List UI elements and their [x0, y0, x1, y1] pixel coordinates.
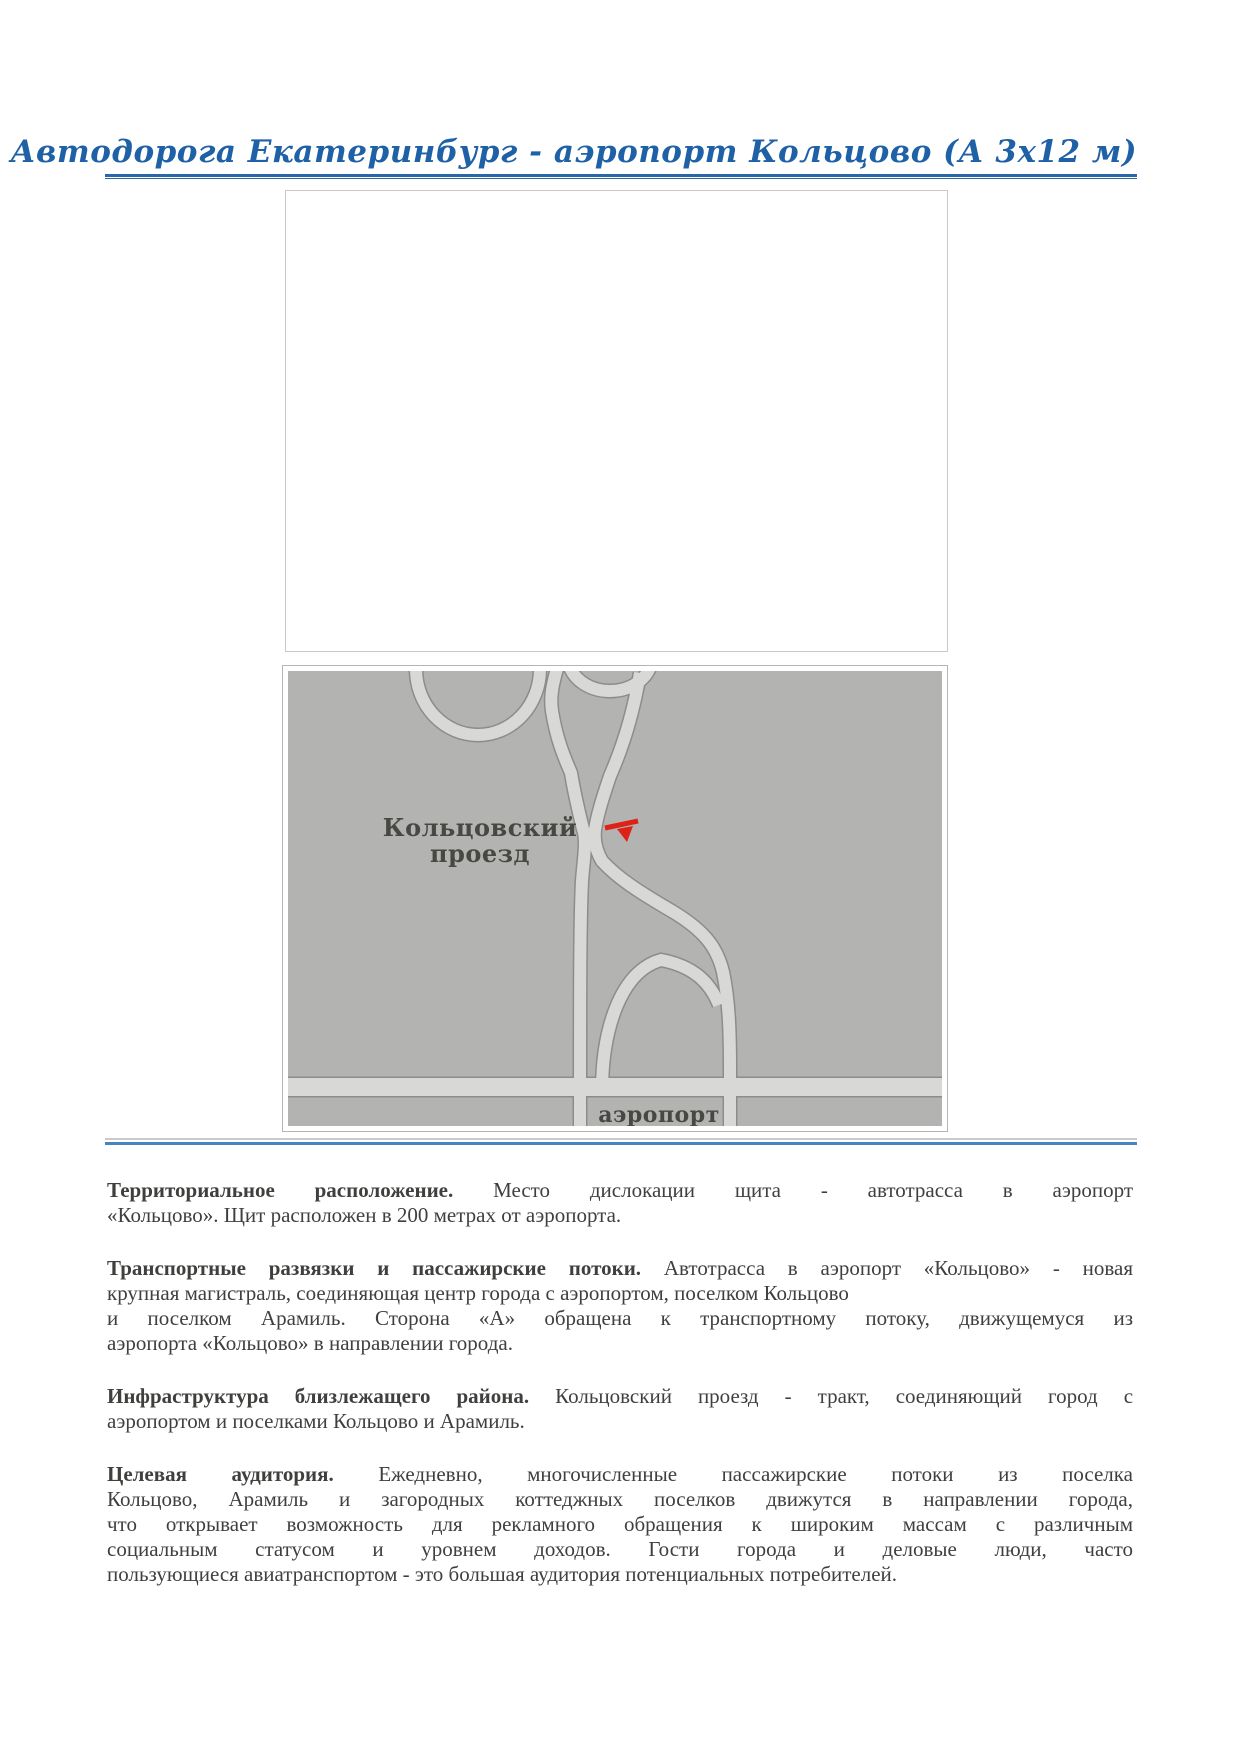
page-title: Автодорога Екатеринбург - аэропорт Кольц… — [10, 134, 1137, 170]
text-line: «Кольцово». Щит расположен в 200 метрах … — [107, 1203, 1133, 1228]
text-line: и поселком Арамиль. Сторона «А» обращена… — [107, 1306, 1133, 1331]
text-span: Кольцовский проезд - тракт, соединяющий … — [555, 1384, 1133, 1408]
text-line: Транспортные развязки и пассажирские пот… — [107, 1256, 1133, 1281]
map-background — [288, 671, 942, 1126]
text-line: аэропортом и поселками Кольцово и Арамил… — [107, 1409, 1133, 1434]
road-label-line2: проезд — [430, 839, 530, 868]
text-line: аэропорта «Кольцово» в направлении город… — [107, 1331, 1133, 1356]
text-line: Целевая аудитория. Ежедневно, многочисле… — [107, 1462, 1133, 1487]
para-audience: Целевая аудитория. Ежедневно, многочисле… — [107, 1462, 1133, 1587]
text-span: Автотрасса в аэропорт «Кольцово» - новая — [664, 1256, 1133, 1280]
header-rule-thin — [105, 178, 1137, 179]
paragraph-heading: Инфраструктура близлежащего района. — [107, 1384, 529, 1408]
separator-rule — [105, 1138, 1137, 1145]
airport-label: аэропорт — [598, 1102, 720, 1126]
para-territorial: Территориальное расположение. Место дисл… — [107, 1178, 1133, 1228]
text-line: пользующиеся авиатранспортом - это больш… — [107, 1562, 1133, 1587]
text-span: Ежедневно, многочисленные пассажирские п… — [378, 1462, 1133, 1486]
text-span: Место дислокации щита - автотрасса в аэр… — [493, 1178, 1133, 1202]
text-line: Инфраструктура близлежащего района. Коль… — [107, 1384, 1133, 1409]
photo-placeholder — [285, 190, 948, 652]
text-line: что открывает возможность для рекламного… — [107, 1512, 1133, 1537]
body-text: Территориальное расположение. Место дисл… — [107, 1178, 1133, 1615]
paragraph-heading: Транспортные развязки и пассажирские пот… — [107, 1256, 641, 1280]
text-line: социальным статусом и уровнем доходов. Г… — [107, 1537, 1133, 1562]
para-transport: Транспортные развязки и пассажирские пот… — [107, 1256, 1133, 1356]
map-svg: Кольцовский проезд аэропорт — [288, 671, 942, 1126]
text-line: Территориальное расположение. Место дисл… — [107, 1178, 1133, 1203]
paragraph-heading: Целевая аудитория. — [107, 1462, 334, 1486]
paragraph-heading: Территориальное расположение. — [107, 1178, 453, 1202]
road-label-line1: Кольцовский — [383, 813, 578, 842]
para-infrastructure: Инфраструктура близлежащего района. Коль… — [107, 1384, 1133, 1434]
text-line: Кольцово, Арамиль и загородных коттеджны… — [107, 1487, 1133, 1512]
separator-blue-line — [105, 1142, 1137, 1145]
page-root: { "header": { "title": "Автодорога Екате… — [0, 0, 1240, 1754]
header-rule — [105, 174, 1137, 179]
text-line: крупная магистраль, соединяющая центр го… — [107, 1281, 1133, 1306]
location-map: Кольцовский проезд аэропорт — [282, 665, 948, 1132]
